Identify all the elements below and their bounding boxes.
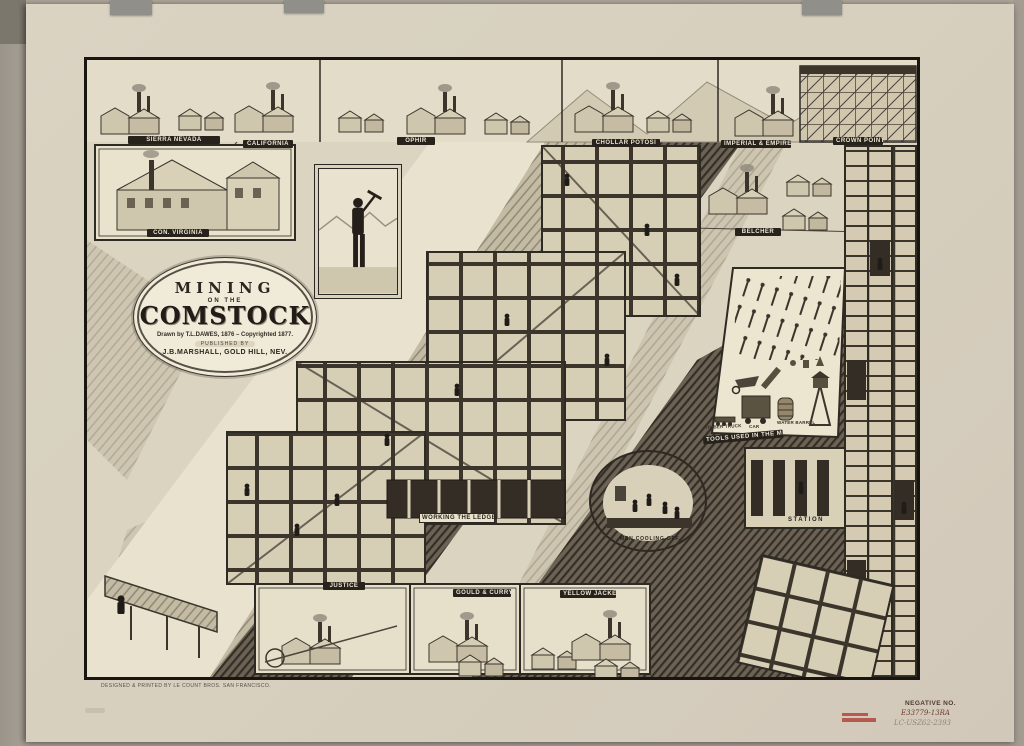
negative-number-handwritten: E33779-13RA — [901, 709, 950, 717]
red-stamp-mark — [842, 718, 876, 722]
vignette-caption-gould-curry: GOULD & CURRY — [453, 589, 511, 597]
scan-bed-right — [1013, 0, 1024, 746]
red-stamp-mark — [842, 713, 868, 716]
vignette-caption-belcher: BELCHER — [735, 228, 781, 236]
vignette-caption-chollar-potosi: CHOLLAR POTOSI — [592, 139, 660, 147]
vignette-caption-sierra-nevada: SIERRA NEVADA — [128, 136, 220, 144]
tools-panel-art — [712, 268, 845, 437]
title-line-comstock: COMSTOCK — [140, 304, 311, 328]
label-station: STATION — [788, 517, 824, 523]
miner-portrait-frame — [318, 168, 398, 295]
tape-tab — [110, 0, 152, 15]
vignette-caption-california: CALIFORNIA — [243, 140, 293, 148]
scan-corner-shadow — [0, 0, 26, 44]
catalog-number-handwritten: LC-USZ62-2393 — [894, 719, 951, 727]
scan-bed-left — [0, 0, 26, 746]
vignette-caption-con-virginia: CON. VIRGINIA — [147, 229, 209, 237]
station-art — [745, 448, 845, 528]
title-credit-line: Drawn by T.L.DAWES, 1876 – Copyrighted 1… — [157, 332, 293, 338]
title-published-by: PUBLISHED BY — [195, 341, 255, 347]
label-working-the-ledge: WORKING THE LEDGE — [419, 513, 495, 523]
tool-label-water-barrel: WATER BARREL — [777, 420, 815, 425]
tape-tab — [284, 0, 324, 13]
title-cartouche: MINING ON THE COMSTOCK Drawn by T.L.DAWE… — [133, 257, 317, 377]
con-virginia-vignette-art — [95, 145, 295, 240]
miner-portrait-art — [319, 169, 397, 294]
label-men-cooling-off: MEN COOLING OFF. — [620, 536, 681, 542]
vignette-caption-justice: JUSTICE — [323, 582, 365, 590]
negative-number-stamp: NEGATIVE NO. — [905, 700, 956, 707]
pencil-mark — [85, 708, 105, 713]
vignette-caption-imperial-empire: IMPERIAL & EMPIRE — [721, 140, 791, 148]
title-line-mining: MINING — [175, 279, 276, 297]
crown-point-trestle-art — [800, 66, 916, 142]
vignette-caption-yellow-jacket: YELLOW JACKET — [560, 590, 616, 598]
tape-tab — [802, 0, 842, 15]
vignette-caption-crown-point: CROWN POINT — [833, 137, 883, 145]
tool-label-car: CAR — [749, 424, 759, 429]
vignette-caption-ophir: OPHIR — [397, 137, 435, 145]
title-publisher: J.B.MARSHALL, GOLD HILL, NEV. — [163, 349, 288, 356]
scanned-lithograph: MINING ON THE COMSTOCK Drawn by T.L.DAWE… — [0, 0, 1024, 746]
printer-imprint: DESIGNED & PRINTED BY LE COUNT BROS. SAN… — [101, 683, 271, 689]
